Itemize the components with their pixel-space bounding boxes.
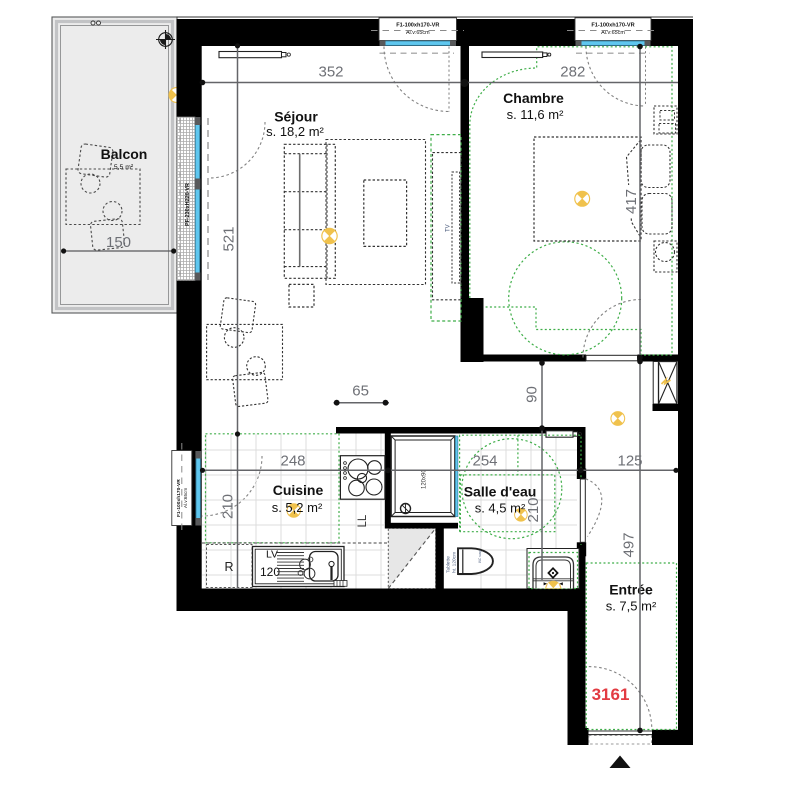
svg-text:F1-100xh170-VR: F1-100xh170-VR xyxy=(591,23,634,29)
svg-text:ht. 120cm: ht. 120cm xyxy=(452,552,458,573)
svg-text:Chambre: Chambre xyxy=(503,90,564,106)
svg-text:F1-100xh170-VR: F1-100xh170-VR xyxy=(396,23,439,29)
svg-text:s. 11,6 m²: s. 11,6 m² xyxy=(507,107,565,122)
svg-text:Balcon: Balcon xyxy=(101,146,148,162)
svg-text:125: 125 xyxy=(617,453,642,470)
svg-text:210: 210 xyxy=(220,494,237,519)
svg-text:R: R xyxy=(224,560,233,574)
svg-text:417: 417 xyxy=(623,189,640,214)
svg-text:65: 65 xyxy=(352,383,369,400)
svg-text:PF-230xH220-VR: PF-230xH220-VR xyxy=(185,183,191,226)
svg-text:497: 497 xyxy=(621,532,638,557)
svg-text:3161: 3161 xyxy=(592,685,630,704)
svg-text:352: 352 xyxy=(318,64,343,81)
svg-text:282: 282 xyxy=(560,64,585,81)
svg-text:F1-100xh170-VR: F1-100xh170-VR xyxy=(176,479,182,517)
svg-text:WC susp: WC susp xyxy=(478,550,482,563)
svg-text:LL: LL xyxy=(357,514,369,527)
svg-text:5,5 m²: 5,5 m² xyxy=(114,164,134,171)
svg-text:TV: TV xyxy=(446,224,452,232)
svg-text:254: 254 xyxy=(472,453,497,470)
svg-text:248: 248 xyxy=(280,453,305,470)
svg-text:120x90: 120x90 xyxy=(422,469,428,489)
svg-text:s. 18,2 m²: s. 18,2 m² xyxy=(266,124,324,139)
svg-text:s. 7,5 m²: s. 7,5 m² xyxy=(606,599,657,614)
svg-text:Tablette: Tablette xyxy=(446,556,452,573)
svg-text:Séjour: Séjour xyxy=(274,109,318,125)
svg-text:s. 5,2 m²: s. 5,2 m² xyxy=(272,500,323,515)
svg-text:521: 521 xyxy=(221,226,238,251)
svg-text:s. 4,5 m²: s. 4,5 m² xyxy=(475,501,526,516)
svg-text:210: 210 xyxy=(525,497,542,522)
svg-text:Entrée: Entrée xyxy=(609,582,653,598)
svg-text:Al.v:65cm: Al.v:65cm xyxy=(183,488,188,508)
svg-text:90: 90 xyxy=(524,386,541,403)
svg-text:Salle d'eau: Salle d'eau xyxy=(464,484,537,500)
svg-text:Cuisine: Cuisine xyxy=(273,482,324,498)
svg-text:150: 150 xyxy=(106,234,131,251)
svg-text:LV: LV xyxy=(266,549,278,561)
